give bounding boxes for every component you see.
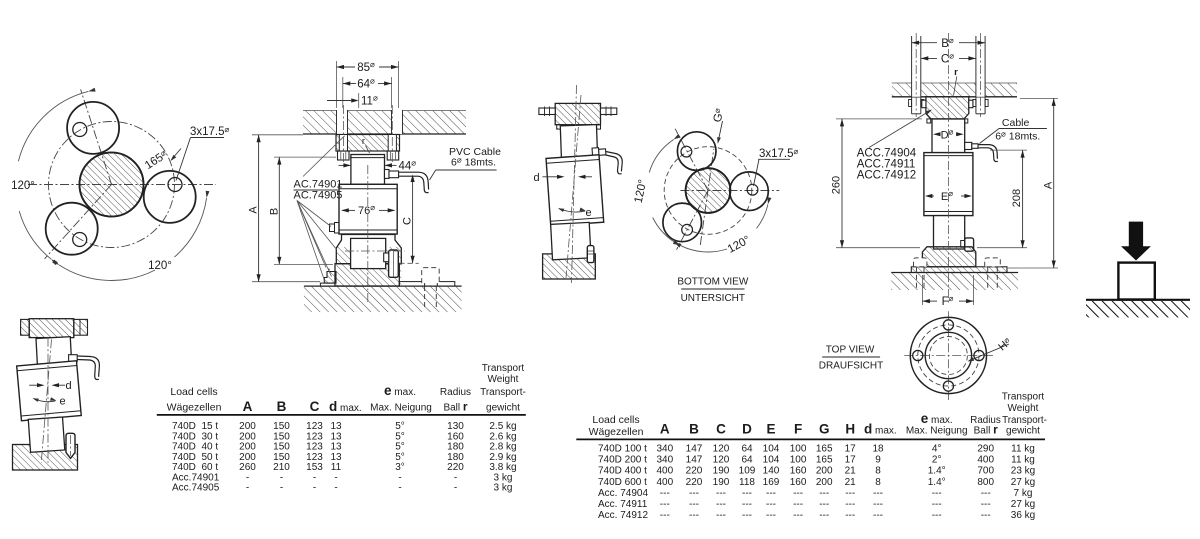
svg-text:---: --- xyxy=(766,488,776,499)
svg-text:-: - xyxy=(280,483,283,494)
svg-text:190: 190 xyxy=(713,466,730,477)
svg-text:F: F xyxy=(794,422,802,437)
svg-text:---: --- xyxy=(845,499,855,510)
svg-text:400: 400 xyxy=(656,466,673,477)
svg-text:190: 190 xyxy=(713,477,730,488)
svg-text:C: C xyxy=(310,399,320,414)
svg-text:160: 160 xyxy=(790,477,807,488)
svg-text:---: --- xyxy=(873,499,883,510)
svg-text:---: --- xyxy=(689,488,699,499)
svg-text:Transport: Transport xyxy=(1002,392,1045,403)
svg-text:800: 800 xyxy=(977,477,994,488)
svg-text:d: d xyxy=(65,380,71,392)
svg-text:160: 160 xyxy=(790,466,807,477)
svg-text:A: A xyxy=(243,399,253,414)
svg-text:UNTERSICHT: UNTERSICHT xyxy=(681,293,745,304)
svg-text:---: --- xyxy=(660,499,670,510)
svg-text:B: B xyxy=(689,422,699,437)
svg-text:A: A xyxy=(248,206,260,214)
svg-text:21: 21 xyxy=(845,466,857,477)
svg-text:B: B xyxy=(268,208,280,215)
svg-text:8: 8 xyxy=(875,477,881,488)
svg-text:400: 400 xyxy=(656,477,673,488)
svg-text:11 kg: 11 kg xyxy=(1011,455,1035,466)
svg-text:r: r xyxy=(362,136,365,147)
svg-text:200: 200 xyxy=(816,466,833,477)
svg-text:27 kg: 27 kg xyxy=(1011,499,1035,510)
svg-text:Transport-: Transport- xyxy=(480,387,526,398)
svg-text:---: --- xyxy=(742,510,752,521)
svg-text:---: --- xyxy=(689,499,699,510)
svg-text:Acc. 74912: Acc. 74912 xyxy=(598,510,648,521)
svg-text:3 kg: 3 kg xyxy=(494,483,513,494)
svg-text:Transport-: Transport- xyxy=(1002,415,1047,426)
svg-text:---: --- xyxy=(981,499,991,510)
svg-text:Acc.74905: Acc.74905 xyxy=(172,483,220,494)
svg-text:---: --- xyxy=(819,510,829,521)
svg-text:1.4°: 1.4° xyxy=(928,477,946,488)
svg-text:2°: 2° xyxy=(932,455,942,466)
svg-text:9: 9 xyxy=(875,455,881,466)
svg-text:208: 208 xyxy=(1011,189,1023,207)
svg-text:Weight: Weight xyxy=(1008,403,1039,414)
svg-text:Acc. 74911: Acc. 74911 xyxy=(598,499,648,510)
svg-text:147: 147 xyxy=(686,444,703,455)
svg-text:-: - xyxy=(454,483,457,494)
svg-text:Load cells: Load cells xyxy=(170,386,217,398)
svg-text:36 kg: 36 kg xyxy=(1011,510,1035,521)
svg-text:BOTTOM VIEW: BOTTOM VIEW xyxy=(677,277,748,288)
svg-text:340: 340 xyxy=(656,455,673,466)
svg-text:ACC.74911: ACC.74911 xyxy=(857,159,916,171)
svg-text:Cable: Cable xyxy=(1002,117,1030,129)
svg-text:ACC.74912: ACC.74912 xyxy=(857,170,916,182)
svg-text:H: H xyxy=(845,422,855,437)
svg-text:3x17.5⌀: 3x17.5⌀ xyxy=(759,147,799,160)
svg-text:740D 400 t: 740D 400 t xyxy=(598,466,647,477)
svg-text:220: 220 xyxy=(686,477,703,488)
svg-text:8: 8 xyxy=(875,466,881,477)
svg-text:-: - xyxy=(398,483,401,494)
svg-text:Load cells: Load cells xyxy=(592,414,639,426)
svg-text:700: 700 xyxy=(977,466,994,477)
svg-text:104: 104 xyxy=(763,444,780,455)
svg-text:21: 21 xyxy=(845,477,857,488)
svg-text:---: --- xyxy=(981,488,991,499)
svg-text:---: --- xyxy=(660,488,670,499)
svg-text:17: 17 xyxy=(845,444,857,455)
svg-text:260: 260 xyxy=(831,176,843,194)
svg-text:---: --- xyxy=(845,488,855,499)
svg-text:118: 118 xyxy=(739,477,755,488)
svg-text:-: - xyxy=(334,483,337,494)
svg-text:E: E xyxy=(766,422,775,437)
svg-text:r: r xyxy=(954,67,958,78)
svg-text:---: --- xyxy=(716,510,726,521)
svg-text:100: 100 xyxy=(790,455,807,466)
svg-text:140: 140 xyxy=(763,466,780,477)
svg-text:---: --- xyxy=(873,488,883,499)
svg-text:Wägezellen: Wägezellen xyxy=(589,426,644,438)
svg-text:---: --- xyxy=(819,488,829,499)
svg-text:340: 340 xyxy=(656,444,673,455)
svg-text:Radius: Radius xyxy=(440,387,471,398)
svg-text:Acc. 74904: Acc. 74904 xyxy=(598,488,648,499)
svg-text:---: --- xyxy=(660,510,670,521)
svg-text:d: d xyxy=(533,172,539,184)
svg-text:A: A xyxy=(1042,181,1054,189)
svg-text:3x17.5⌀: 3x17.5⌀ xyxy=(190,125,230,138)
svg-text:---: --- xyxy=(793,488,803,499)
svg-text:4°: 4° xyxy=(932,444,942,455)
svg-text:64: 64 xyxy=(741,455,753,466)
svg-text:120: 120 xyxy=(713,455,730,466)
svg-text:-: - xyxy=(246,483,249,494)
svg-text:G: G xyxy=(819,422,830,437)
svg-text:---: --- xyxy=(716,499,726,510)
svg-text:---: --- xyxy=(932,510,942,521)
svg-text:AC.74905: AC.74905 xyxy=(294,190,343,202)
svg-text:11 kg: 11 kg xyxy=(1011,444,1035,455)
svg-text:740D 100 t: 740D 100 t xyxy=(598,444,647,455)
svg-text:120°: 120° xyxy=(148,260,172,272)
svg-text:400: 400 xyxy=(977,455,994,466)
svg-text:17: 17 xyxy=(845,455,857,466)
svg-text:---: --- xyxy=(766,499,776,510)
svg-text:104: 104 xyxy=(763,455,780,466)
svg-text:A: A xyxy=(660,422,670,437)
svg-text:TOP VIEW: TOP VIEW xyxy=(826,345,875,356)
svg-text:---: --- xyxy=(981,510,991,521)
svg-text:Wägezellen: Wägezellen xyxy=(167,402,222,414)
svg-text:Max. Neigung: Max. Neigung xyxy=(370,403,432,414)
svg-text:120: 120 xyxy=(713,444,730,455)
svg-text:---: --- xyxy=(932,499,942,510)
svg-text:147: 147 xyxy=(686,455,703,466)
svg-text:64: 64 xyxy=(741,444,753,455)
svg-text:Max. Neigung: Max. Neigung xyxy=(906,426,968,437)
svg-text:---: --- xyxy=(689,510,699,521)
svg-text:D: D xyxy=(742,422,752,437)
svg-text:165: 165 xyxy=(816,444,833,455)
svg-text:---: --- xyxy=(873,510,883,521)
svg-text:18: 18 xyxy=(872,444,884,455)
svg-text:---: --- xyxy=(766,510,776,521)
svg-text:Ball r: Ball r xyxy=(443,400,467,414)
svg-text:gewicht: gewicht xyxy=(1006,426,1040,437)
svg-text:B: B xyxy=(277,399,287,414)
svg-text:C: C xyxy=(402,217,414,225)
svg-text:C: C xyxy=(716,422,726,437)
svg-text:165: 165 xyxy=(816,455,833,466)
svg-text:290: 290 xyxy=(977,444,994,455)
svg-text:gewicht: gewicht xyxy=(486,403,520,414)
svg-text:200: 200 xyxy=(816,477,833,488)
svg-text:---: --- xyxy=(742,499,752,510)
svg-text:Transport: Transport xyxy=(482,363,525,374)
svg-text:27 kg: 27 kg xyxy=(1011,477,1035,488)
svg-text:23 kg: 23 kg xyxy=(1011,466,1035,477)
svg-text:DRAUFSICHT: DRAUFSICHT xyxy=(819,361,883,372)
svg-text:220: 220 xyxy=(686,466,703,477)
svg-text:1.4°: 1.4° xyxy=(928,466,946,477)
svg-text:-: - xyxy=(313,483,316,494)
svg-text:740D 600 t: 740D 600 t xyxy=(598,477,647,488)
svg-text:---: --- xyxy=(932,488,942,499)
svg-text:7 kg: 7 kg xyxy=(1014,488,1033,499)
svg-text:---: --- xyxy=(793,499,803,510)
svg-text:---: --- xyxy=(716,488,726,499)
svg-text:ACC.74904: ACC.74904 xyxy=(857,147,917,159)
svg-text:---: --- xyxy=(793,510,803,521)
svg-text:169: 169 xyxy=(763,477,780,488)
svg-text:Ball r: Ball r xyxy=(974,423,998,437)
svg-text:120°: 120° xyxy=(11,180,35,192)
svg-text:e: e xyxy=(585,207,591,219)
svg-text:100: 100 xyxy=(790,444,807,455)
svg-text:---: --- xyxy=(742,488,752,499)
svg-text:740D 200 t: 740D 200 t xyxy=(598,455,647,466)
svg-text:---: --- xyxy=(845,510,855,521)
svg-text:e: e xyxy=(59,396,65,408)
svg-text:Weight: Weight xyxy=(488,374,519,385)
svg-text:109: 109 xyxy=(739,466,756,477)
svg-text:---: --- xyxy=(819,499,829,510)
